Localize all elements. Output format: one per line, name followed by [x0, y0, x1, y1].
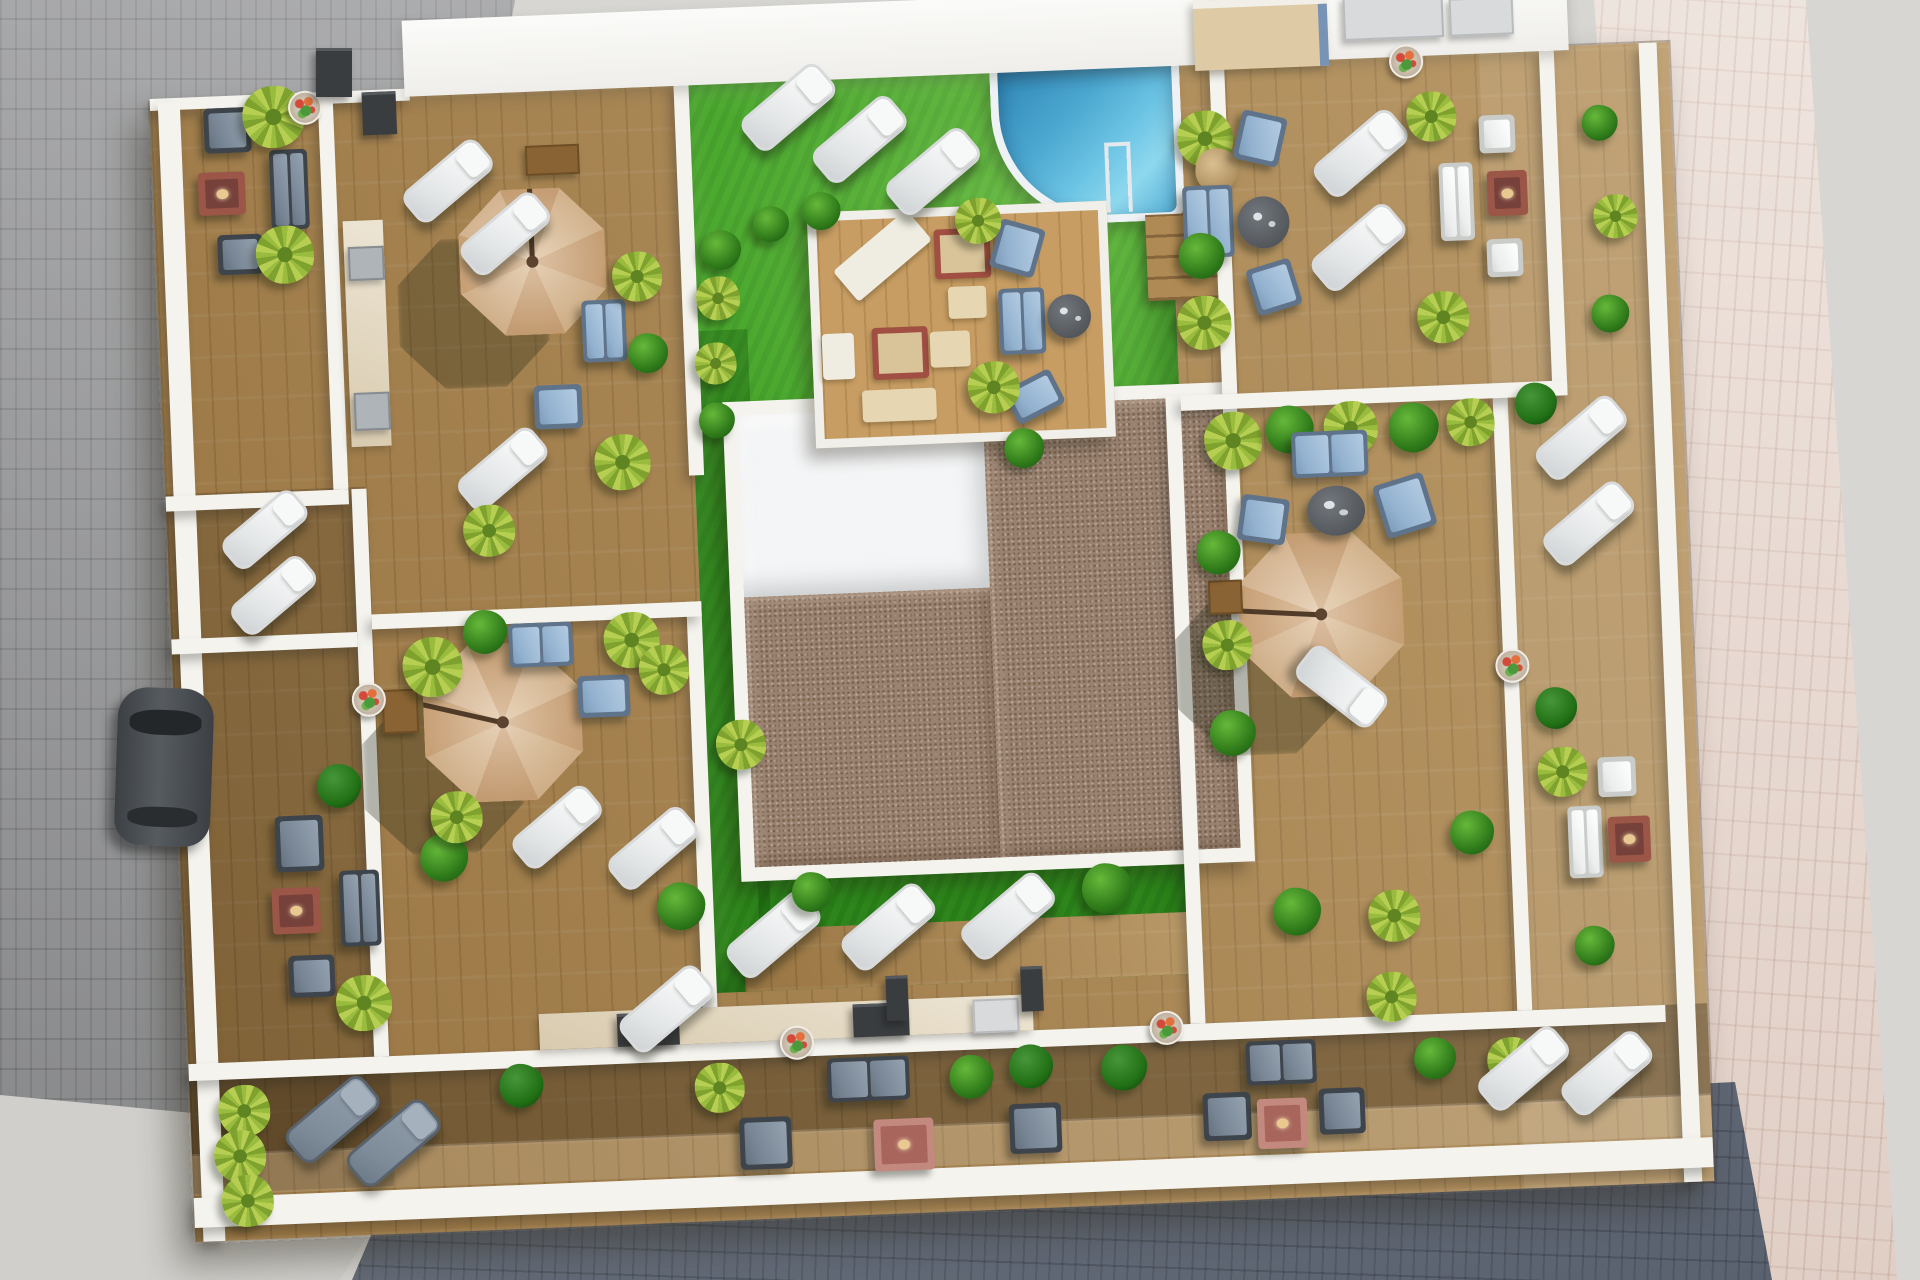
- aerial-rooftop-render: [0, 0, 1920, 1280]
- outdoor-armchair: [739, 1116, 793, 1170]
- deck-mat: [871, 326, 929, 380]
- fire-table: [1608, 815, 1652, 863]
- wood-bench: [381, 689, 419, 734]
- fire-table: [271, 887, 321, 935]
- gravel-roof: [744, 588, 1001, 868]
- outdoor-sofa: [339, 869, 382, 947]
- outdoor-sofa: [581, 299, 627, 363]
- bbq-grill: [1020, 966, 1044, 1012]
- rooftop-building: [148, 40, 1717, 1244]
- rooftop-unit: [1342, 0, 1444, 41]
- outdoor-sofa: [1291, 429, 1369, 478]
- outdoor-sofa: [1438, 162, 1475, 241]
- fire-table: [1257, 1097, 1309, 1149]
- outdoor-armchair: [1486, 238, 1523, 277]
- pool-ladder: [1104, 142, 1133, 213]
- stair-bulkhead: [1192, 0, 1329, 71]
- outdoor-armchair: [1202, 1092, 1252, 1142]
- rooftop-unit: [354, 392, 391, 431]
- bbq-grill: [885, 975, 909, 1021]
- fire-table: [198, 171, 247, 216]
- outdoor-armchair: [1318, 1087, 1366, 1135]
- wood-bench: [1208, 580, 1243, 615]
- outdoor-armchair: [1597, 756, 1637, 797]
- outdoor-armchair: [288, 954, 336, 998]
- outdoor-sofa: [1567, 805, 1604, 878]
- deck-mat: [822, 333, 856, 380]
- fire-table: [1487, 170, 1529, 217]
- rooftop-unit: [348, 246, 385, 281]
- deck-mat: [862, 388, 937, 423]
- parked-car: [113, 686, 214, 847]
- outdoor-armchair: [533, 384, 583, 430]
- outdoor-armchair: [1009, 1102, 1063, 1154]
- outdoor-armchair: [274, 815, 324, 873]
- outdoor-armchair: [1236, 494, 1290, 546]
- outdoor-sofa: [508, 621, 574, 668]
- fire-table: [873, 1117, 935, 1171]
- rooftop-unit: [1449, 0, 1514, 37]
- bbq-grill: [316, 48, 352, 97]
- bbq-grill: [361, 91, 397, 135]
- outdoor-armchair: [1478, 114, 1515, 153]
- outdoor-armchair: [577, 674, 631, 718]
- wood-bench: [525, 144, 580, 176]
- deck-mat: [930, 330, 971, 368]
- outdoor-sofa: [827, 1055, 911, 1102]
- outdoor-sofa: [998, 287, 1047, 355]
- outdoor-sofa: [269, 149, 310, 230]
- deck-mat: [948, 286, 987, 319]
- rooftop-unit: [972, 998, 1019, 1034]
- outdoor-sofa: [1245, 1039, 1317, 1086]
